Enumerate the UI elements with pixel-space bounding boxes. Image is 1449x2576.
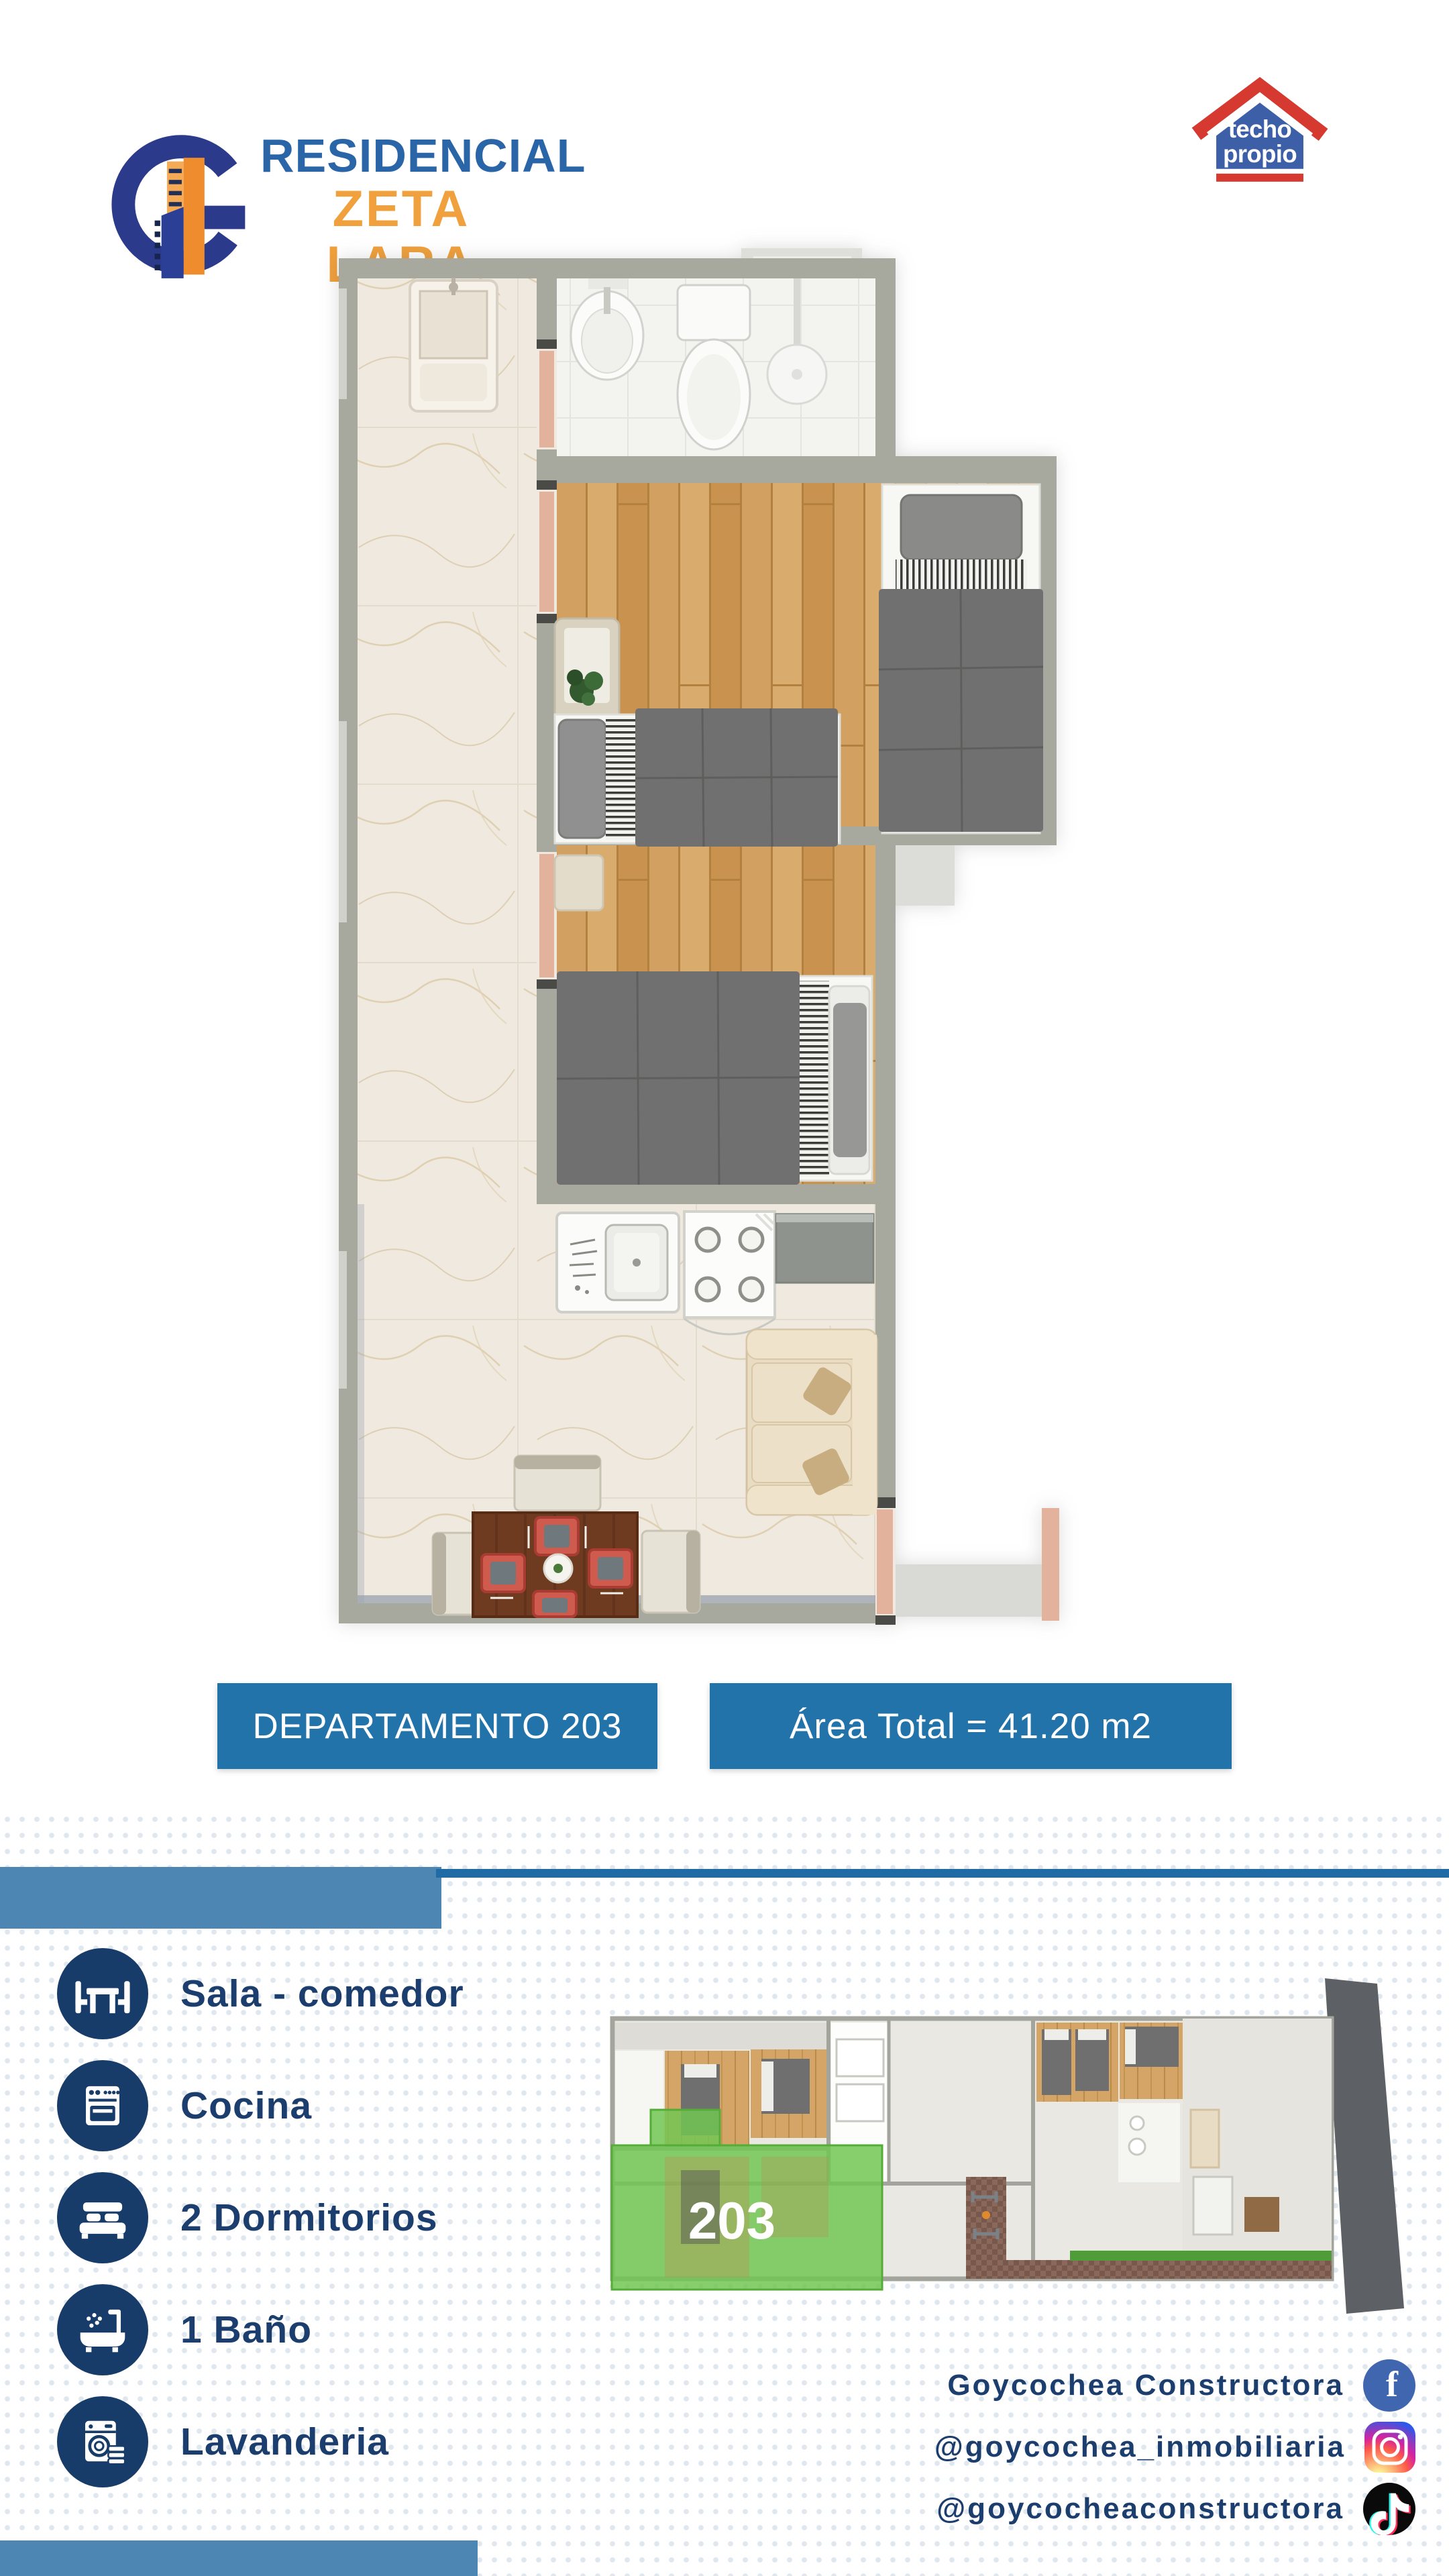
goycochea-logo xyxy=(107,119,255,287)
street-strip xyxy=(1325,1978,1404,2314)
feature-label: Sala - comedor xyxy=(180,1972,464,2016)
propio-word: propio xyxy=(1223,140,1297,168)
building-floor-key-plan: 203 xyxy=(600,1976,1415,2318)
facebook-row[interactable]: Goycochea Constructora f xyxy=(947,2359,1415,2412)
bedroom2-nightstand xyxy=(555,855,603,910)
instagram-handle: @goycochea_inmobiliaria xyxy=(934,2430,1346,2464)
bedroom2-bed xyxy=(557,971,872,1185)
bedroom1-bed-vertical xyxy=(879,484,1043,833)
bottom-accent-bar xyxy=(0,2540,478,2576)
dining-table xyxy=(473,1513,637,1617)
feature-label: 2 Dormitorios xyxy=(180,2196,438,2240)
total-area-text: Área Total = 41.20 m2 xyxy=(790,1706,1152,1747)
feature-list: Sala - comedor Cocina xyxy=(57,1948,464,2487)
apartment-number-text: DEPARTAMENTO 203 xyxy=(252,1706,622,1747)
feature-label: Lavanderia xyxy=(180,2420,389,2464)
dining-table-icon xyxy=(57,1948,148,2039)
bedroom1-bed-horizontal xyxy=(555,708,840,847)
feature-lavanderia: Lavanderia xyxy=(57,2396,464,2487)
tiktok-row[interactable]: @goycocheaconstructora xyxy=(936,2482,1415,2536)
techo-word: techo xyxy=(1228,115,1291,143)
stove xyxy=(684,1212,775,1334)
stove-icon xyxy=(57,2060,148,2151)
unit-number-label: 203 xyxy=(688,2191,775,2250)
wall-accent-line-left xyxy=(358,1204,364,1603)
nightstand-plant xyxy=(555,619,619,729)
feature-dormitorios: 2 Dormitorios xyxy=(57,2172,464,2263)
bed-icon xyxy=(57,2172,148,2263)
total-area-banner: Área Total = 41.20 m2 xyxy=(710,1683,1232,1769)
tiktok-icon[interactable] xyxy=(1363,2483,1415,2535)
bathtub-icon xyxy=(57,2284,148,2375)
kitchen-sink-counter xyxy=(557,1213,679,1312)
divider-bar-dark xyxy=(436,1869,1449,1878)
toilet xyxy=(678,285,750,449)
facebook-icon[interactable]: f xyxy=(1363,2359,1415,2412)
feature-label: 1 Baño xyxy=(180,2308,312,2352)
facebook-handle: Goycochea Constructora xyxy=(947,2369,1344,2402)
kitchen-counter-gray xyxy=(776,1214,873,1283)
social-links: Goycochea Constructora f @goycochea_inmo… xyxy=(934,2359,1415,2536)
techo-propio-logo: techo propio xyxy=(1189,75,1331,196)
flyer-page: RESIDENCIAL ZETA LARA techo propio xyxy=(0,0,1449,2576)
feature-label: Cocina xyxy=(180,2084,312,2128)
apartment-number-banner: DEPARTAMENTO 203 xyxy=(217,1683,657,1769)
apartment-floor-plan xyxy=(339,248,1060,1644)
details-section: Sala - comedor Cocina xyxy=(0,1811,1449,2576)
divider-bar-light xyxy=(0,1867,441,1929)
instagram-icon[interactable] xyxy=(1364,2422,1415,2473)
feature-sala-comedor: Sala - comedor xyxy=(57,1948,464,2039)
feature-bano: 1 Baño xyxy=(57,2284,464,2375)
instagram-row[interactable]: @goycochea_inmobiliaria xyxy=(934,2420,1415,2474)
laundry-sink xyxy=(410,278,497,411)
corridor-floor xyxy=(358,278,537,1204)
washing-machine-icon xyxy=(57,2396,148,2487)
sofa xyxy=(747,1330,877,1515)
feature-cocina: Cocina xyxy=(57,2060,464,2151)
tiktok-handle: @goycocheaconstructora xyxy=(936,2492,1344,2526)
brand-line-residencial: RESIDENCIAL xyxy=(260,131,542,181)
